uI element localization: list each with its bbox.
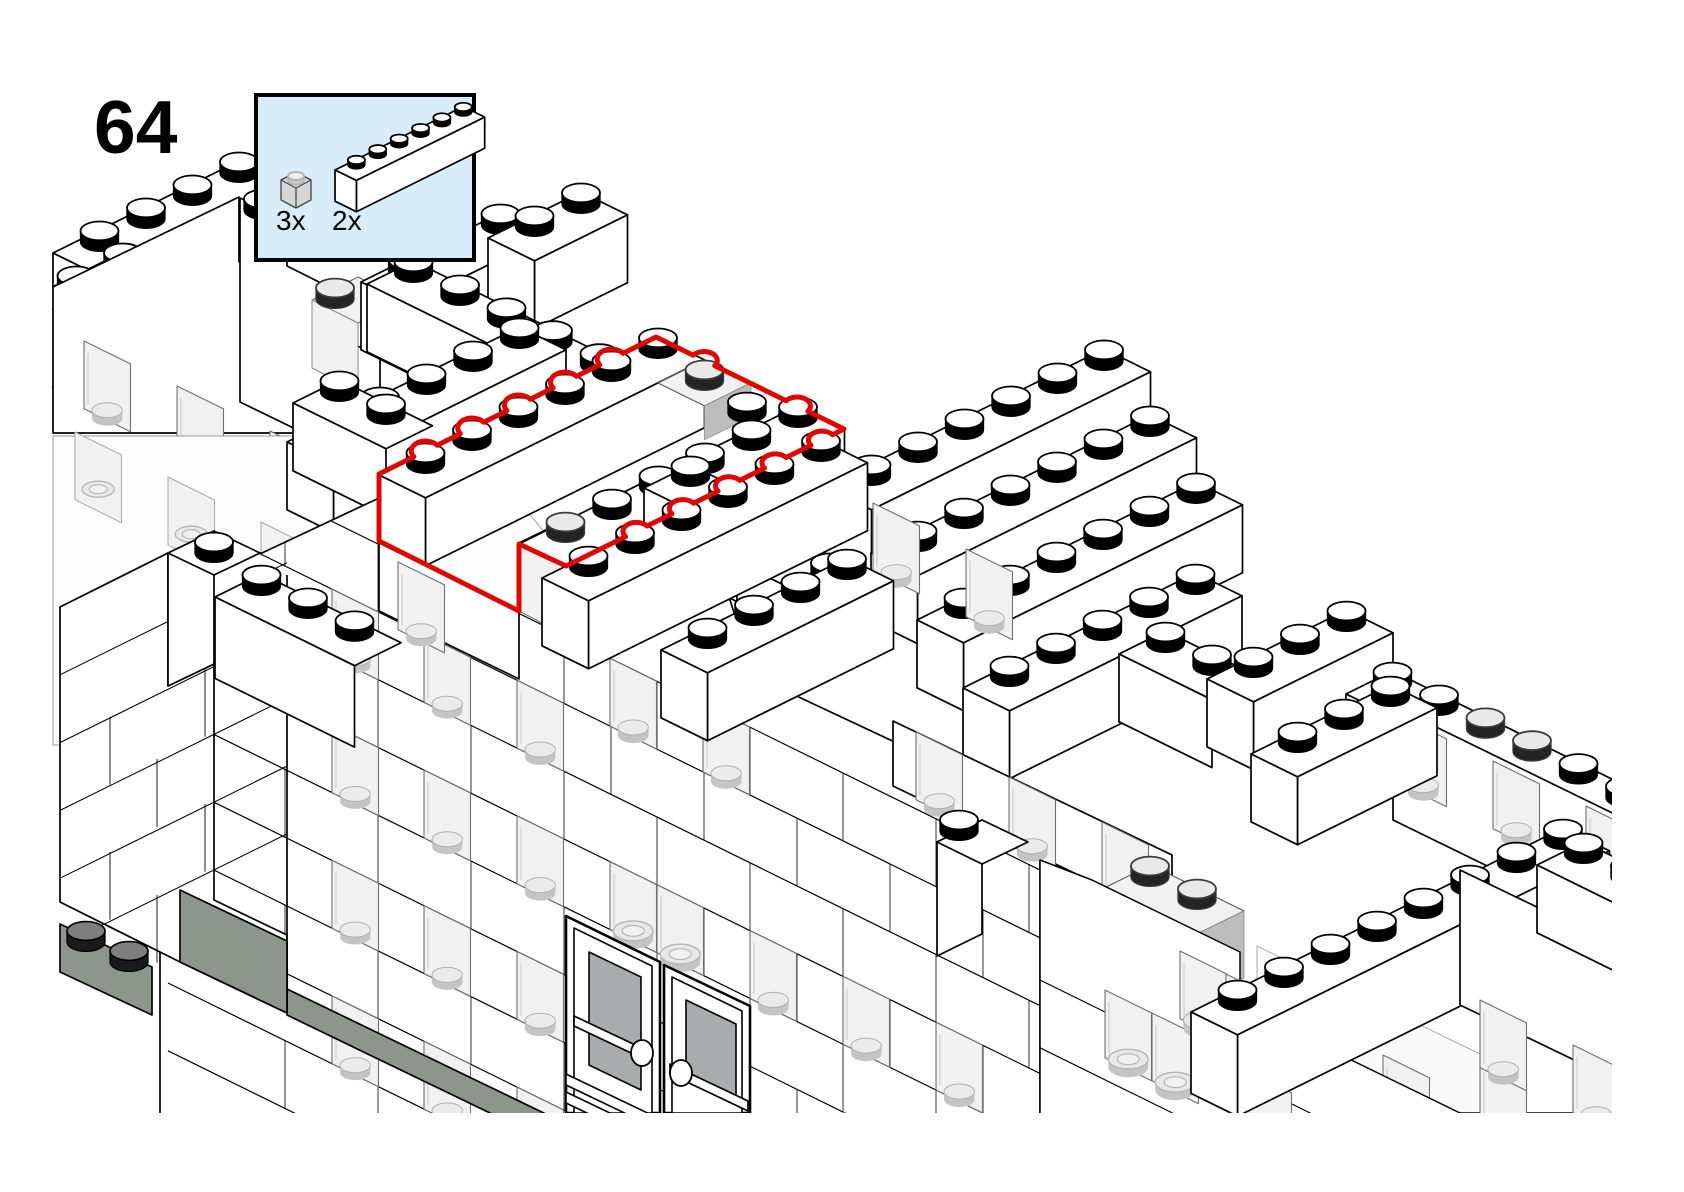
svg-text:2x: 2x [332, 205, 362, 236]
svg-text:3x: 3x [276, 205, 306, 236]
